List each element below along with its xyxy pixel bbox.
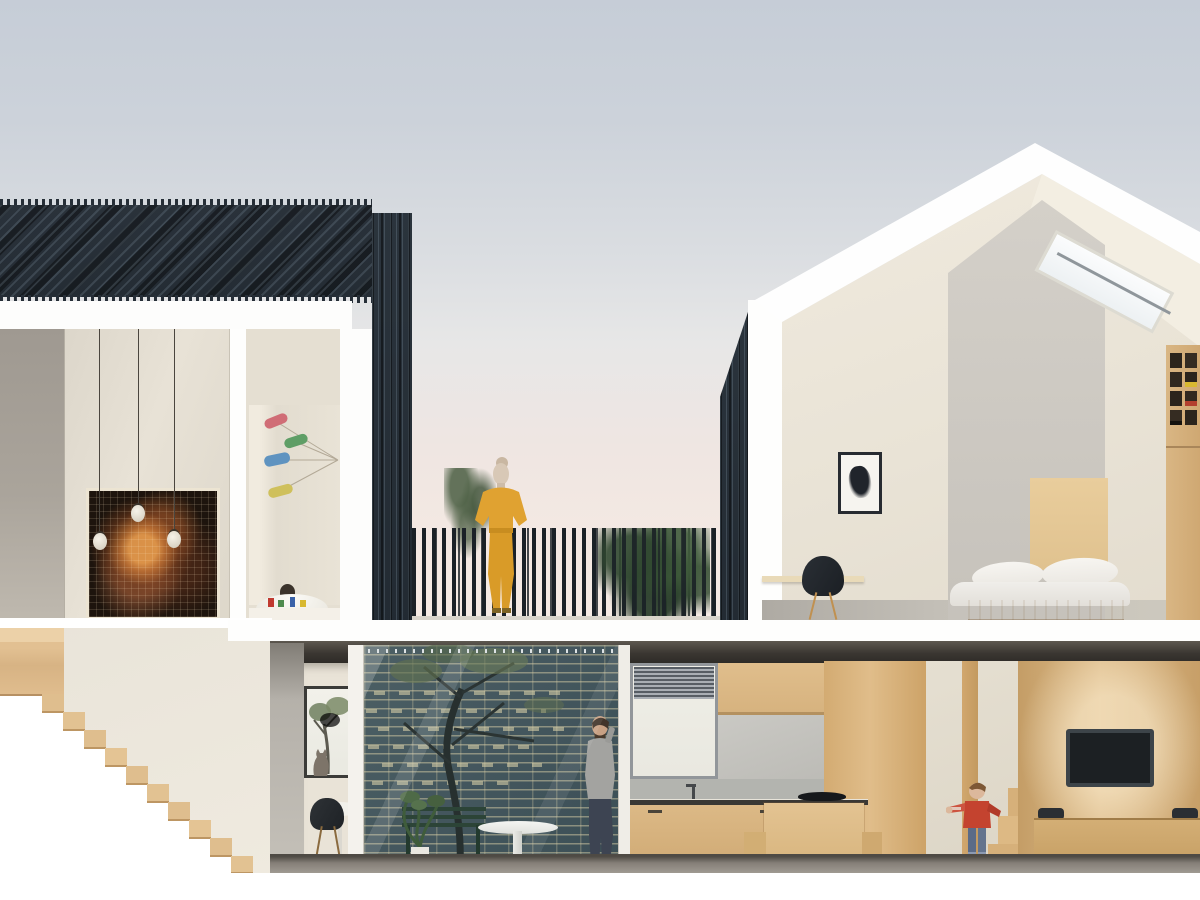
kitchen-bowl	[798, 792, 846, 801]
kitchen-splash-band	[630, 779, 824, 799]
dining-chair-shell	[310, 798, 344, 830]
terrace-railing-front-right	[612, 528, 722, 622]
wardrobe-cubby-8	[1185, 410, 1197, 425]
pendant-cord-3	[174, 329, 175, 533]
wardrobe-cubby-2	[1185, 353, 1197, 368]
nursery-toy-yellow	[300, 600, 306, 607]
upper-floor-cut-band	[228, 620, 1200, 641]
left-fascia-cut	[0, 301, 352, 329]
wardrobe-shelf-line	[1166, 446, 1200, 448]
lower-floor-slab	[270, 854, 1200, 874]
bedroom-chair-shell	[802, 556, 844, 596]
glass-reflection	[364, 645, 618, 872]
terrace-left-slat-pillar	[372, 213, 412, 641]
kitchen-faucet-spout	[686, 784, 696, 787]
bottom-cut-white	[0, 873, 1200, 900]
stair-step-9	[210, 838, 232, 857]
wardrobe-cubby-3	[1170, 372, 1182, 387]
nursery-toy-blue	[290, 597, 295, 607]
wardrobe-cubby-5	[1170, 391, 1182, 406]
stair-step-7	[168, 802, 190, 821]
pendant-bulb-1	[93, 533, 107, 550]
bed-frame-wood	[968, 600, 1124, 622]
kitchen-window-blind	[634, 667, 714, 699]
stair-step-4	[105, 748, 127, 767]
stair-step-3	[84, 730, 106, 749]
left-roof-slats	[0, 205, 372, 297]
stairhall-grey-wall	[0, 329, 64, 628]
bed-headboard-panel	[1030, 478, 1108, 570]
kitchen-handle-1	[648, 810, 662, 813]
courtyard-frame-right	[618, 645, 630, 872]
stair-step-8	[189, 820, 211, 839]
stair-step-1	[42, 694, 64, 713]
courtyard-glass-track-dots	[368, 649, 614, 653]
stair-step-6	[147, 784, 169, 803]
cat-on-windowsill	[310, 746, 330, 778]
pendant-cord-1	[99, 329, 100, 535]
stair-step-2	[63, 712, 85, 731]
stair-step-10	[231, 856, 253, 874]
wardrobe-cubby-4	[1185, 372, 1197, 387]
pendant-bulb-2	[131, 505, 145, 522]
terrace-left-wall-cut	[340, 329, 372, 641]
right-building-left-wall-cut	[748, 300, 782, 641]
nursery-mobile	[252, 408, 344, 512]
courtyard-frame-left	[348, 645, 364, 872]
woman-on-terrace	[468, 456, 534, 620]
kitchen-upper-cabinet	[718, 663, 824, 715]
lower-left-wall-edge	[270, 643, 304, 872]
courtyard-glass	[364, 645, 618, 872]
nursery-toy-red	[268, 598, 274, 607]
wardrobe-cubby-1	[1170, 353, 1182, 368]
stair-landing-wood-cut	[0, 628, 64, 696]
wardrobe-cubby-6	[1185, 391, 1197, 406]
tv	[1066, 729, 1154, 787]
stair-step-5	[126, 766, 148, 785]
painting-mosaic-grid	[89, 491, 217, 617]
wall-cut-strip	[230, 329, 246, 628]
architectural-section-canvas	[0, 0, 1200, 900]
pendant-cord-2	[138, 329, 139, 507]
kitchen-backsplash	[718, 715, 824, 781]
pendant-bulb-3	[167, 531, 181, 548]
nursery-toy-green	[278, 600, 284, 607]
wardrobe-cubby-7	[1170, 410, 1182, 425]
